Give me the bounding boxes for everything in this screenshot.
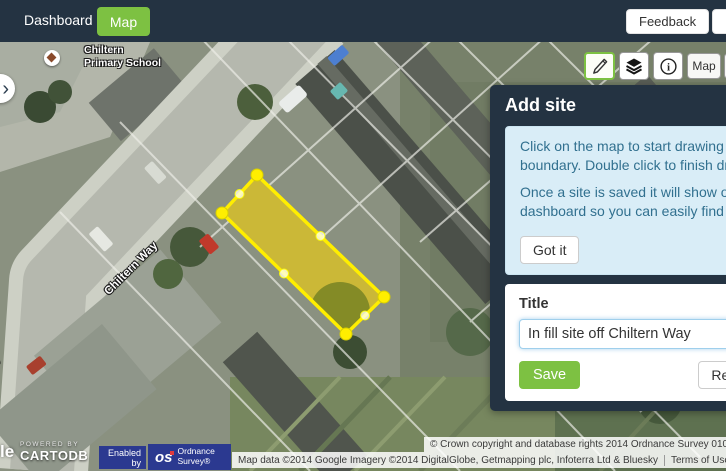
- save-button[interactable]: Save: [519, 361, 580, 389]
- info-icon: i: [659, 57, 678, 76]
- school-poi-icon: [44, 50, 60, 66]
- site-midpoint-handle[interactable]: [361, 311, 370, 320]
- nav-map-button[interactable]: Map: [97, 7, 150, 36]
- site-vertex-handle[interactable]: [378, 291, 390, 303]
- add-site-panel: Add site Click on the map to start drawi…: [490, 85, 726, 411]
- reset-button[interactable]: Reset: [698, 361, 726, 389]
- terms-of-use-link[interactable]: Terms of Use: [664, 455, 726, 466]
- draw-tool-button[interactable]: [584, 52, 615, 80]
- site-form: Title Save Reset: [505, 284, 726, 401]
- info-button[interactable]: i: [653, 52, 683, 80]
- site-vertex-handle[interactable]: [216, 207, 228, 219]
- chevron-right-icon: ›: [2, 78, 9, 100]
- site-midpoint-handle[interactable]: [316, 232, 325, 241]
- svg-text:i: i: [666, 61, 669, 73]
- map-type-map-button[interactable]: Map: [687, 53, 721, 79]
- top-navbar: Dashboard Map Feedback: [0, 0, 726, 42]
- school-label: Chiltern Primary School: [84, 44, 161, 69]
- app-window: { "navbar": { "dashboard": "Dashboard", …: [0, 0, 726, 471]
- site-vertex-handle[interactable]: [251, 169, 263, 181]
- instructions-para-2: Once a site is saved it will show on you…: [520, 183, 726, 222]
- feedback-button[interactable]: Feedback: [626, 9, 709, 34]
- nav-partial-button[interactable]: [712, 9, 726, 34]
- site-vertex-handle[interactable]: [340, 328, 352, 340]
- map-type-map-label: Map: [692, 59, 715, 73]
- instructions-para-1: Click on the map to start drawing a site…: [520, 137, 726, 176]
- pencil-icon: [591, 57, 609, 75]
- title-input[interactable]: [519, 319, 726, 349]
- site-midpoint-handle[interactable]: [235, 190, 244, 199]
- panel-title: Add site: [505, 95, 726, 116]
- nav-dashboard-link[interactable]: Dashboard: [24, 12, 93, 28]
- instructions-box: Click on the map to start drawing a site…: [505, 126, 726, 275]
- got-it-button[interactable]: Got it: [520, 236, 579, 264]
- layers-button[interactable]: [619, 52, 649, 80]
- site-midpoint-handle[interactable]: [280, 269, 289, 278]
- title-field-label: Title: [519, 296, 726, 312]
- layers-icon: [624, 56, 644, 76]
